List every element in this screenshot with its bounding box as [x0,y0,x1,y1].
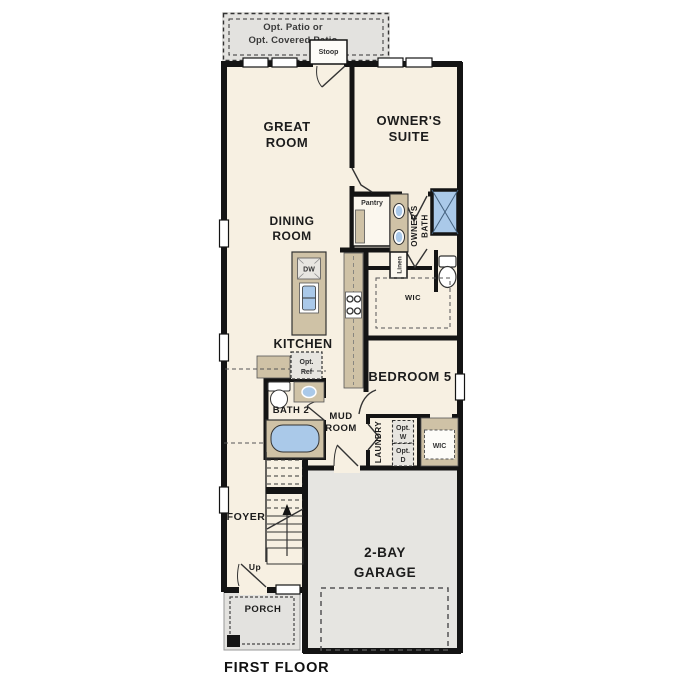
opt-ref-label-line2: Ref [301,369,313,376]
stoop-label: Stoop [319,49,339,56]
garage-label-line2: GARAGE [354,565,416,580]
linen-label: Linen [397,256,404,273]
owners-suite-label-line1: OWNER'S [376,113,441,128]
hall-wic: WIC [421,418,458,466]
kitchen-island: DW [292,252,326,335]
laundry: LAUNDRY Opt. W Opt. D [374,421,414,467]
owners-bath-label-line1: OWNER'S [410,205,419,247]
great-room-label-line1: GREAT [263,119,310,134]
bathtub [271,425,319,452]
opt-washer-label-line1: Opt. [396,425,410,432]
pantry: Pantry [353,196,390,246]
opt-ref-label-line1: Opt. [300,359,314,366]
toilet-tank [439,256,456,267]
opt-dryer-label-line2: D [400,457,405,464]
dishwasher-label: DW [303,267,315,274]
mud-room-label-line2: ROOM [325,423,357,434]
porch-post [227,635,240,647]
bedroom5-label: BEDROOM 5 [368,369,451,384]
bath2: BATH 2 [266,382,324,458]
foyer-label: FOYER [227,511,266,523]
bath2-label: BATH 2 [273,405,310,416]
garage-label-line1: 2-BAY [364,545,406,560]
mud-room-label-line1: MUD [329,411,352,422]
kitchen-counter [344,253,363,388]
up-label: Up [249,562,261,572]
kitchen-label: KITCHEN [273,337,332,351]
toilet-bowl [439,267,456,288]
optional-patio: Opt. Patio or Opt. Covered Patio [222,12,390,62]
plan-title: FIRST FLOOR [224,660,329,676]
owners-suite-label-line2: SUITE [389,129,430,144]
bath2-sink [302,387,316,398]
garage-floor [307,470,458,653]
owners-wic-label: WIC [405,293,421,302]
opt-dryer-label-line1: Opt. [396,448,410,455]
optional-refrigerator: Opt. Ref [291,352,322,379]
opt-washer-label-line2: W [400,434,407,441]
porch-label: PORCH [245,604,282,615]
patio-label-line1: Opt. Patio or [263,22,323,33]
great-room-label-line2: ROOM [266,135,308,150]
dining-room-label-line1: DINING [270,214,315,228]
pantry-label: Pantry [361,200,383,207]
hall-wic-label: WIC [433,443,447,450]
floor-plan: Opt. Patio or Opt. Covered Patio [0,0,687,687]
laundry-label: LAUNDRY [374,421,383,463]
owners-bath-label-line2: BATH [421,214,430,238]
dining-room-label-line2: ROOM [272,229,311,243]
